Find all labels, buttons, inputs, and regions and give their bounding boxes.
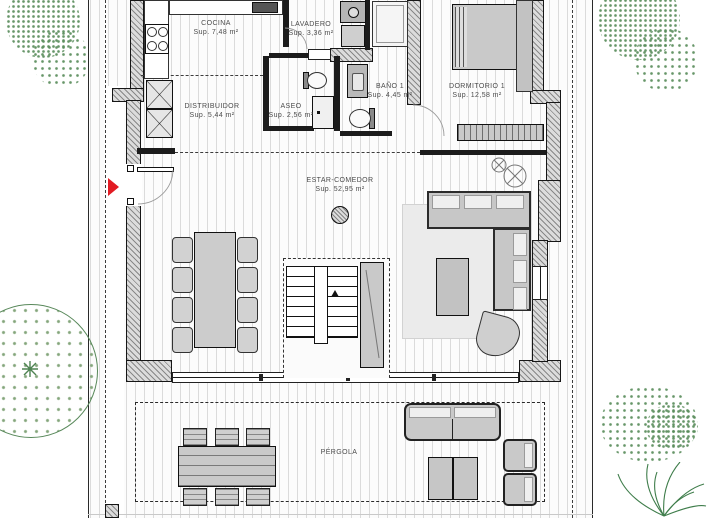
room-name: ASEO: [269, 102, 314, 111]
toilet-bowl: [349, 109, 371, 128]
outdoor-ottoman: [453, 457, 478, 500]
outdoor-table: [178, 446, 276, 487]
circle-cross-symbol: [503, 164, 527, 188]
tall-appliance-unit: [146, 80, 173, 109]
wall-segment: [532, 240, 548, 362]
room-name: LAVADERO: [289, 20, 334, 29]
cushion: [513, 287, 527, 310]
dining-table: [194, 232, 236, 348]
sofa-section: [427, 191, 531, 229]
entrance-path: [106, 86, 124, 518]
closet-rail: [457, 124, 544, 141]
pocket-door: [308, 49, 331, 60]
room-name: DORMITORIO 1: [449, 82, 505, 91]
room-label-lavadero: LAVADERO Sup. 3,36 m²: [289, 20, 334, 38]
wall-segment: [538, 180, 561, 242]
wardrobe: [516, 0, 533, 92]
room-label-dormitorio1: DORMITORIO 1 Sup. 12,58 m²: [449, 82, 505, 100]
room-label-pergola: PÉRGOLA: [321, 448, 358, 457]
room-label-distribuidor: DISTRIBUIDOR Sup. 5,44 m²: [185, 102, 240, 120]
chair: [237, 267, 258, 293]
burner: [147, 27, 157, 37]
room-area: Sup. 7,48 m²: [194, 28, 239, 37]
setback-line-left: [105, 0, 106, 518]
wall-segment: [340, 131, 392, 136]
shower-tray: [376, 5, 404, 43]
bush-bottom-right: [646, 404, 698, 450]
chair: [172, 267, 193, 293]
cushion: [409, 407, 451, 418]
room-label-bano1: BAÑO 1 Sup. 4,45 m²: [368, 82, 413, 100]
room-name: ESTAR-COMEDOR: [307, 176, 374, 185]
room-name: DISTRIBUIDOR: [185, 102, 240, 111]
wall-segment: [137, 148, 175, 154]
tree-left: [0, 304, 98, 438]
room-area: Sup. 2,56 m²: [269, 111, 314, 120]
wall-segment: [126, 360, 172, 382]
room-label-estar-comedor: ESTAR-COMEDOR Sup. 52,95 m²: [307, 176, 374, 194]
palm-plant: [612, 462, 707, 518]
door-jamb: [127, 165, 134, 172]
window: [532, 266, 548, 300]
room-area: Sup. 4,45 m²: [368, 91, 413, 100]
cushion: [496, 195, 524, 209]
chair: [237, 327, 258, 353]
chair: [237, 237, 258, 263]
outdoor-armchair: [503, 439, 537, 472]
outdoor-armchair: [503, 473, 537, 506]
boundary-line-left: [88, 0, 89, 518]
sink-basin: [352, 73, 364, 91]
room-area: Sup. 52,95 m²: [307, 185, 374, 194]
outdoor-chair: [183, 488, 207, 506]
kitchen-sink: [252, 2, 278, 13]
floor-plan-canvas: { "plan": { "rooms": [ {"name": "COCINA"…: [0, 0, 707, 518]
chair: [237, 297, 258, 323]
coffee-table: [436, 258, 469, 316]
outdoor-chair: [215, 428, 239, 446]
washing-machine: [340, 1, 366, 23]
outdoor-ottoman: [428, 457, 453, 500]
entrance-door-leaf: [137, 167, 174, 172]
ceiling-change-line: [175, 152, 420, 153]
tall-appliance-unit: [146, 109, 173, 138]
outdoor-sofa: [404, 403, 501, 441]
cushion: [524, 477, 533, 502]
wall-segment: [126, 100, 141, 166]
stair-direction-arrow: [331, 290, 339, 297]
washer-drum: [348, 7, 359, 18]
wall-segment: [269, 53, 309, 58]
shower: [372, 1, 408, 47]
room-area: Sup. 5,44 m²: [185, 111, 240, 120]
pillows: [455, 7, 467, 67]
chair: [172, 327, 193, 353]
cushion: [513, 260, 527, 283]
bed: [452, 4, 521, 70]
wall-segment: [420, 150, 546, 155]
cushion: [454, 407, 496, 418]
cushion: [464, 195, 492, 209]
seat-split: [452, 419, 453, 439]
chair: [172, 237, 193, 263]
chair: [172, 297, 193, 323]
mullion: [259, 374, 263, 381]
tree-top-left: [32, 30, 90, 88]
wall-segment: [130, 0, 144, 90]
cushion: [513, 233, 527, 256]
outdoor-chair: [246, 428, 270, 446]
room-label-cocina: COCINA Sup. 7,48 m²: [194, 19, 239, 37]
toilet-bowl: [307, 72, 327, 89]
outdoor-chair: [246, 488, 270, 506]
stove: [145, 24, 169, 54]
door-jamb: [127, 198, 134, 205]
column: [331, 206, 349, 224]
wall-segment: [546, 102, 561, 182]
plot-bottom-line: [88, 514, 593, 515]
boundary-line-right: [592, 0, 593, 518]
door-handle: [317, 111, 320, 114]
laundry-cabinet: [341, 25, 365, 47]
room-area: Sup. 12,58 m²: [449, 91, 505, 100]
pergola-pillar: [105, 504, 119, 518]
tree-top-right: [634, 28, 698, 92]
stair-ramp-wall: [360, 262, 384, 368]
outdoor-chair: [183, 428, 207, 446]
room-label-aseo: ASEO Sup. 2,56 m²: [269, 102, 314, 120]
wall-segment: [519, 360, 561, 382]
aseo-door-leaf: [312, 96, 334, 129]
burner: [147, 41, 157, 51]
cushion: [524, 443, 533, 468]
burner: [158, 41, 168, 51]
wall-segment: [126, 204, 141, 366]
wall-segment: [334, 56, 340, 131]
entrance-arrow: [108, 178, 119, 196]
sofa-section: [493, 228, 531, 311]
room-name: PÉRGOLA: [321, 448, 358, 457]
bathroom-vanity: [347, 64, 368, 98]
wall-segment: [269, 126, 314, 131]
cushion: [432, 195, 460, 209]
outdoor-chair: [215, 488, 239, 506]
stair-stringer: [314, 266, 328, 344]
setback-line-right: [572, 0, 573, 518]
room-name: COCINA: [194, 19, 239, 28]
burner: [158, 27, 168, 37]
room-name: BAÑO 1: [368, 82, 413, 91]
mullion: [432, 374, 436, 381]
room-area: Sup. 3,36 m²: [289, 29, 334, 38]
